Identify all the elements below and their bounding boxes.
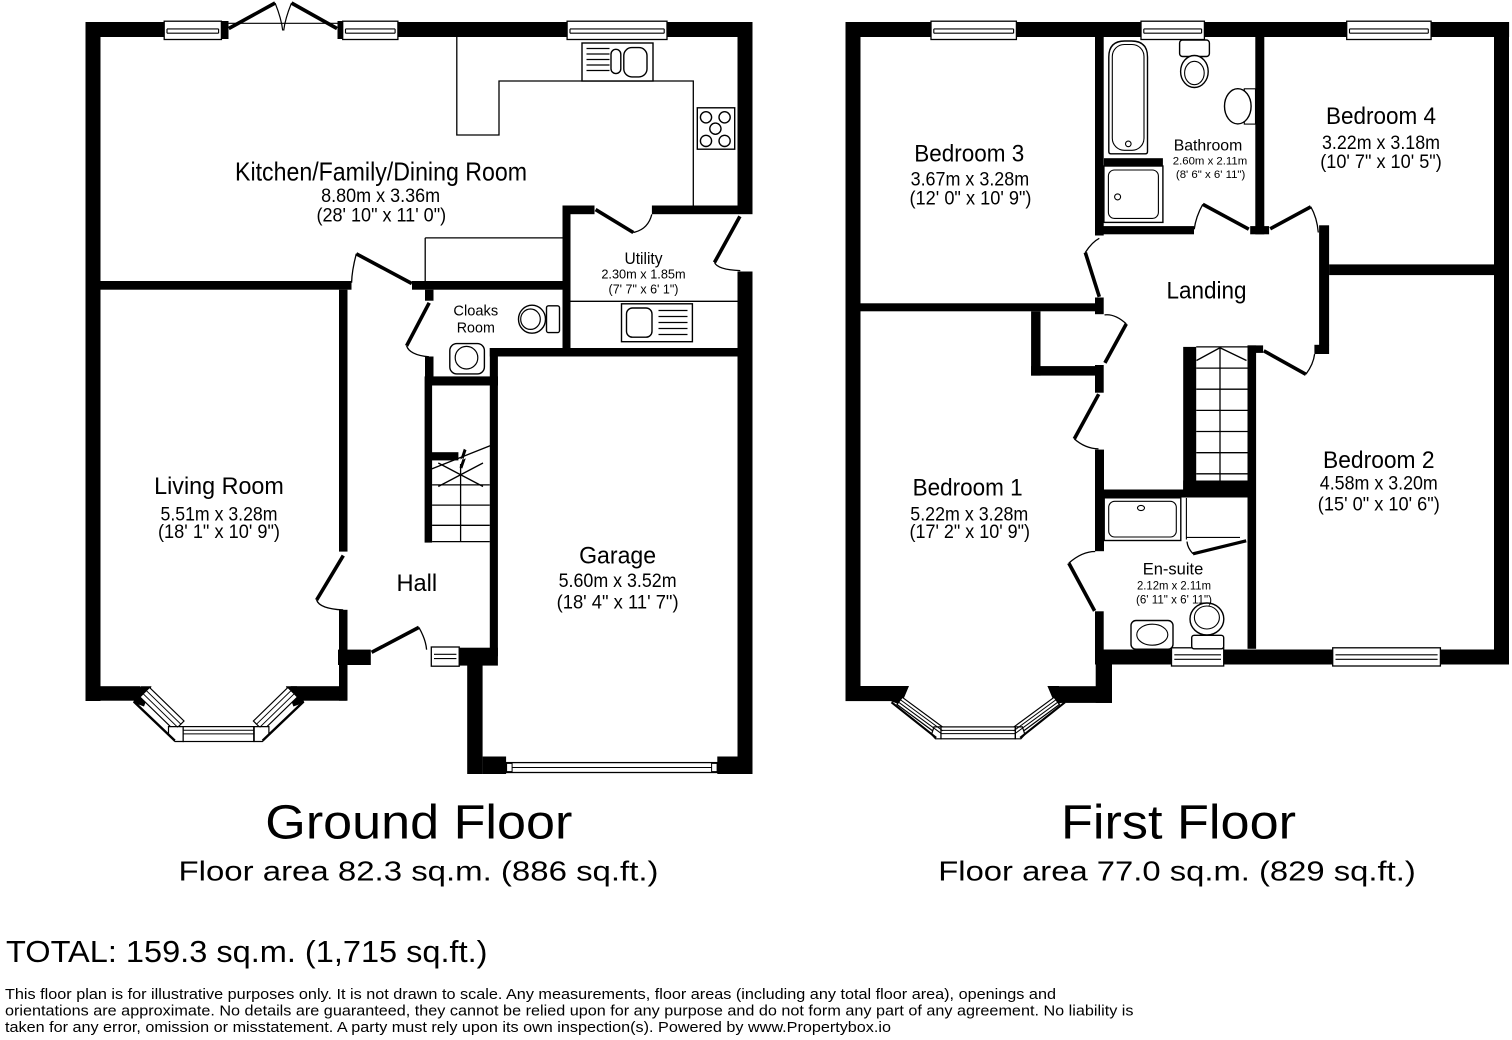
svg-text:2.12m x 2.11m: 2.12m x 2.11m <box>1137 579 1211 593</box>
svg-text:orientations are approximate.: orientations are approximate. No details… <box>5 1003 1134 1020</box>
svg-text:(12' 0" x 10' 9"): (12' 0" x 10' 9") <box>910 188 1032 210</box>
svg-text:First Floor: First Floor <box>1061 797 1296 850</box>
svg-text:2.30m x 1.85m: 2.30m x 1.85m <box>601 267 685 282</box>
svg-text:TOTAL: 159.3 sq.m. (1,715 sq.f: TOTAL: 159.3 sq.m. (1,715 sq.ft.) <box>6 935 488 969</box>
svg-text:taken for any error, omission: taken for any error, omission or misstat… <box>5 1019 891 1036</box>
svg-text:Bedroom 1: Bedroom 1 <box>913 474 1023 501</box>
svg-text:(18' 1" x 10' 9"): (18' 1" x 10' 9") <box>158 521 280 543</box>
svg-text:5.60m x 3.52m: 5.60m x 3.52m <box>559 570 677 592</box>
svg-text:Landing: Landing <box>1167 278 1247 305</box>
svg-text:Ground Floor: Ground Floor <box>265 797 572 850</box>
svg-text:(15' 0" x 10' 6"): (15' 0" x 10' 6") <box>1318 494 1440 516</box>
svg-text:(17' 2" x 10' 9"): (17' 2" x 10' 9") <box>910 521 1031 543</box>
svg-text:Room: Room <box>457 321 495 337</box>
svg-text:(10' 7" x 10' 5"): (10' 7" x 10' 5") <box>1320 151 1442 173</box>
svg-text:Bedroom 4: Bedroom 4 <box>1326 103 1436 130</box>
svg-text:Utility: Utility <box>625 250 664 268</box>
svg-text:(8' 6" x 6' 11"): (8' 6" x 6' 11") <box>1176 169 1246 181</box>
svg-text:This floor plan is for illustr: This floor plan is for illustrative purp… <box>5 986 1056 1003</box>
svg-text:Bedroom 2: Bedroom 2 <box>1323 447 1435 474</box>
svg-text:Bathroom: Bathroom <box>1174 138 1243 155</box>
svg-text:Garage: Garage <box>579 543 656 570</box>
svg-text:4.58m x 3.20m: 4.58m x 3.20m <box>1320 473 1438 495</box>
svg-text:Cloaks: Cloaks <box>453 304 498 320</box>
svg-text:Floor area 82.3 sq.m. (886 sq.: Floor area 82.3 sq.m. (886 sq.ft.) <box>179 856 659 887</box>
svg-text:(6' 11" x 6' 11"): (6' 11" x 6' 11") <box>1136 593 1212 607</box>
svg-text:(18' 4" x 11' 7"): (18' 4" x 11' 7") <box>557 592 679 614</box>
svg-text:2.60m x 2.11m: 2.60m x 2.11m <box>1173 155 1247 167</box>
svg-text:(7' 7" x 6' 1"): (7' 7" x 6' 1") <box>609 281 679 296</box>
svg-text:(28' 10" x 11' 0"): (28' 10" x 11' 0") <box>317 204 447 226</box>
svg-text:Hall: Hall <box>396 570 437 597</box>
svg-text:En-suite: En-suite <box>1143 561 1204 579</box>
svg-text:Living Room: Living Room <box>154 473 284 500</box>
svg-text:Bedroom 3: Bedroom 3 <box>914 141 1024 168</box>
svg-text:Floor area 77.0 sq.m. (829 sq.: Floor area 77.0 sq.m. (829 sq.ft.) <box>938 856 1416 887</box>
svg-text:Kitchen/Family/Dining Room: Kitchen/Family/Dining Room <box>235 156 527 186</box>
